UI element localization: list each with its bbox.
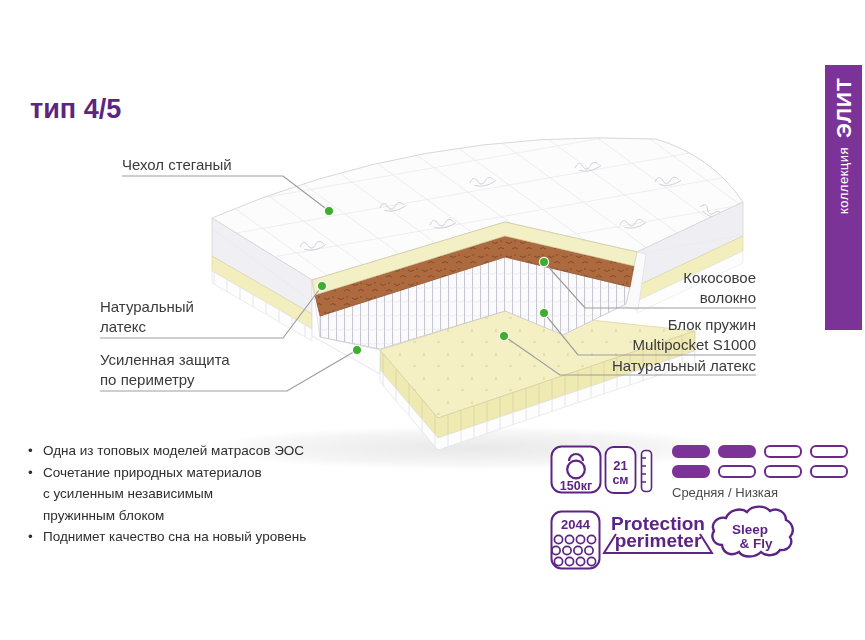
firmness-bar [672,465,710,478]
ruler-icon [642,451,652,492]
collection-name: ЭЛИТ [832,77,856,138]
collection-banner: коллекция ЭЛИТ [825,65,862,330]
cloud-logo: Sleep & Fly [712,507,792,557]
firmness-row-top [672,445,848,458]
callout-label-perimeter: Усиленная защита по периметру [100,350,230,390]
firmness-row-bottom [672,465,848,478]
callout-label-spring-block: Блок пружин Multipocket S1000 [456,315,756,355]
max-weight-badge: 150кг [552,447,601,493]
callout-label-coconut: Кокосовое волокно [456,268,756,308]
brand-line1: Sleep [732,522,768,537]
protection-perimeter-badge: Protection perimeter [604,513,712,553]
max-weight-value: 150кг [560,479,592,493]
infographic-page: 150кг 21 см 2044 [0,0,865,640]
callout-dot-latex-left [317,281,326,290]
firmness-bar [810,465,848,478]
feature-list: Одна из топовых моделей матрасов ЭОС Соч… [26,440,371,548]
firmness-bar [810,445,848,458]
firmness-label: Средняя / Низкая [672,485,848,500]
callout-label-latex-left: Натуральный латекс [100,297,194,337]
callout-label-latex-right: Натуральный латекс [456,356,756,376]
collection-banner-text: коллекция ЭЛИТ [825,65,862,330]
firmness-bar [718,445,756,458]
callout-dot-cover [324,206,333,215]
callout-label-cover: Чехол стеганый [122,155,232,175]
firmness-bar [718,465,756,478]
feature-item: Сочетание природных материалов с усиленн… [26,462,371,527]
page-title: тип 4/5 [30,94,121,125]
callout-dot-coconut [539,257,548,266]
height-badge: 21 см [606,447,636,493]
brand-line2: & Fly [739,536,772,551]
feature-item: Поднимет качество сна на новый уровень [26,526,371,548]
feature-item: Одна из топовых моделей матрасов ЭОС [26,440,371,462]
firmness-bar [672,445,710,458]
springs-count-value: 2044 [561,517,591,532]
collection-label: коллекция [836,147,851,214]
firmness-indicator: Средняя / Низкая [672,445,848,500]
height-unit: см [612,473,628,487]
firmness-bar [764,465,802,478]
springs-count-icon: 2044 [552,512,600,569]
firmness-bar [764,445,802,458]
height-value: 21 [613,458,627,473]
protection-line2: perimeter [615,530,702,551]
callout-dot-perimeter [352,345,361,354]
